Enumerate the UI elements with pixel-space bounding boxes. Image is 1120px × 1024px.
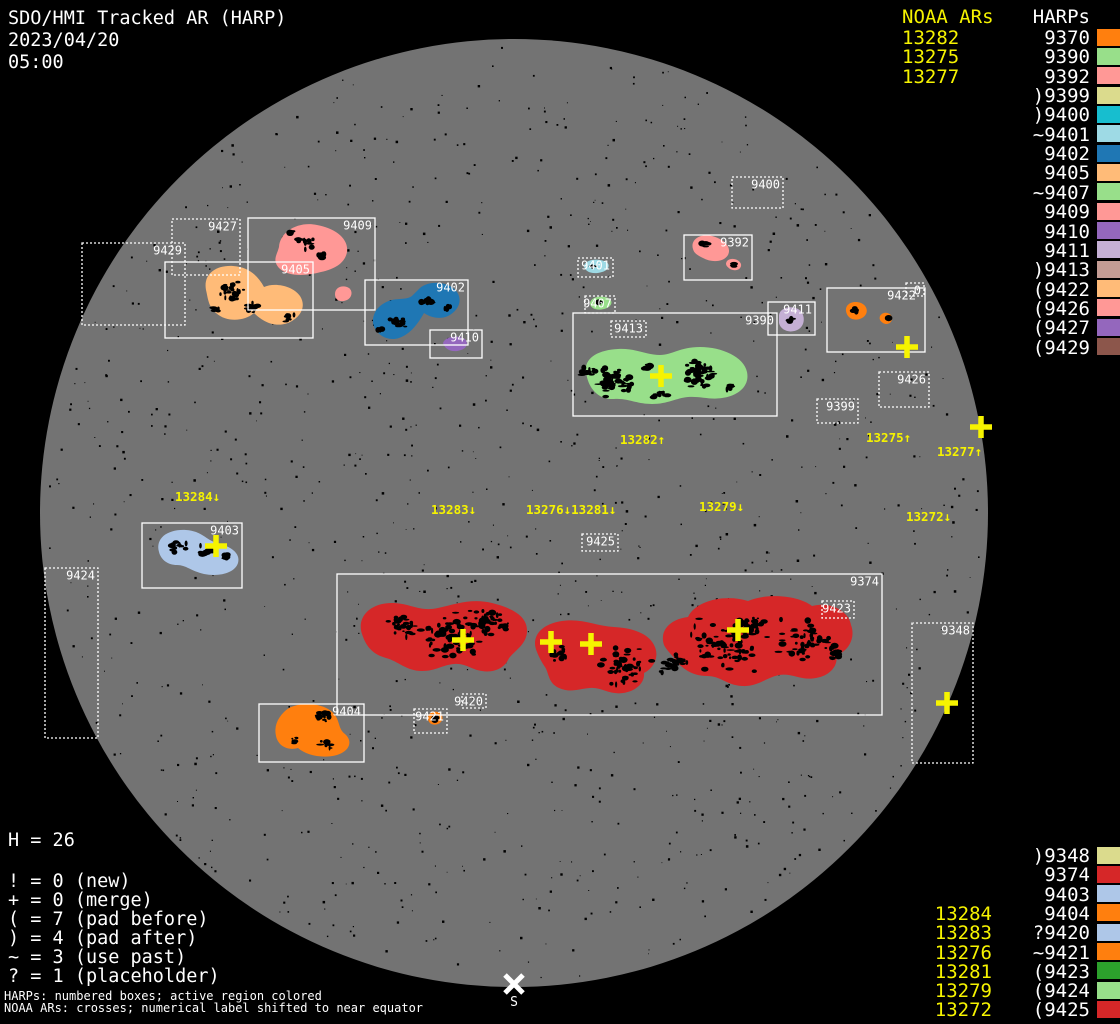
- harp-color-swatch: [1097, 125, 1120, 142]
- harp-box-label-9401: 9401: [581, 259, 610, 273]
- harp-box-label-9413: 9413: [614, 322, 643, 336]
- harp-color-swatch: [1097, 203, 1120, 220]
- harp-color-swatch: [1097, 67, 1120, 84]
- harp-box-label-9405: 9405: [281, 263, 310, 277]
- legend-line-padafter: ) = 4 (pad after): [8, 929, 197, 948]
- harp-color-swatch: [1097, 106, 1120, 123]
- harp-box-label-9400: 9400: [751, 178, 780, 192]
- harp-box-label-9423: 9423: [822, 602, 851, 616]
- noaa-disk-label: 13279↓: [699, 499, 744, 514]
- harp-color-swatch: [1097, 299, 1120, 316]
- harp-box-label-9392: 9392: [720, 236, 749, 250]
- harp-color-swatch: [1097, 280, 1120, 297]
- harp-color-swatch: [1097, 904, 1120, 921]
- harp-color-swatch: [1097, 261, 1120, 278]
- noaa-disk-label: 13282↑: [620, 432, 665, 447]
- noaa-disk-label: 13272↓: [906, 509, 951, 524]
- harp-color-swatch: [1097, 87, 1120, 104]
- harp-color-swatch: [1097, 319, 1120, 336]
- harp-box-label-9425: 9425: [586, 535, 615, 549]
- harp-color-swatch: [1097, 183, 1120, 200]
- harp-list-item: (9425: [998, 999, 1090, 1021]
- noaa-disk-label: 13276↓13281↓: [526, 502, 616, 517]
- harps-header: HARPs: [998, 8, 1090, 28]
- harp-box-label-9421: 9421: [415, 710, 444, 724]
- harp-color-swatch: [1097, 943, 1120, 960]
- noaa-ar-item: 13272: [900, 999, 992, 1021]
- legend-line-usepast: ~ = 3 (use past): [8, 948, 186, 967]
- harp-count-line: H = 26: [8, 831, 75, 850]
- legend-line-merge: + = 0 (merge): [8, 891, 153, 910]
- harp-color-swatch: [1097, 982, 1120, 999]
- harp-color-swatch: [1097, 241, 1120, 258]
- harp-box-label-9402: 9402: [436, 281, 465, 295]
- harp-color-swatch: [1097, 29, 1120, 46]
- harp-box-label-9370: 0: [914, 284, 921, 298]
- harp-color-swatch: [1097, 1001, 1120, 1018]
- harp-box-label-9374: 9374: [850, 575, 879, 589]
- harp-box-label-9426: 9426: [897, 373, 926, 387]
- harp-color-swatch: [1097, 48, 1120, 65]
- legend-line-padbefore: ( = 7 (pad before): [8, 910, 208, 929]
- solar-disk-canvas: 9409940594029410939294119390942294039404…: [0, 0, 1120, 1024]
- page-title: SDO/HMI Tracked AR (HARP): [8, 9, 286, 28]
- solar-disk: [40, 39, 988, 987]
- time-label: 05:00: [8, 53, 64, 72]
- noaa-disk-label: 13275↑: [866, 430, 911, 445]
- harp-color-swatch: [1097, 847, 1120, 864]
- harp-box-label-9422: 9422: [887, 289, 916, 303]
- harp-box-label-9348: 9348: [941, 624, 970, 638]
- harp-box-label-9409: 9409: [343, 219, 372, 233]
- harp-color-swatch: [1097, 338, 1120, 355]
- legend-line-placeholder: ? = 1 (placeholder): [8, 967, 220, 986]
- noaa-ar-item: 13277: [902, 66, 959, 88]
- harp-box-label-9411: 9411: [783, 303, 812, 317]
- date-label: 2023/04/20: [8, 31, 119, 50]
- harp-box-label-9429: 9429: [153, 244, 182, 258]
- harp-box-label-9427: 9427: [208, 220, 237, 234]
- noaa-ars-header: NOAA ARs: [902, 8, 994, 28]
- noaa-disk-label: 13277↑: [937, 444, 982, 459]
- harp-box-label-9390: 9390: [745, 314, 774, 328]
- harp-box-label-9399: 9399: [826, 400, 855, 414]
- harp-box-label-9407: 9407: [583, 297, 612, 311]
- harp-box-label-9420: 9420: [454, 695, 483, 709]
- harp-color-swatch: [1097, 885, 1120, 902]
- south-pole-label: S: [510, 995, 518, 1010]
- harp-box-label-9424: 9424: [66, 569, 95, 583]
- noaa-disk-label: 13284↓: [175, 489, 220, 504]
- harp-color-swatch: [1097, 145, 1120, 162]
- harp-color-swatch: [1097, 962, 1120, 979]
- harp-list-item: (9429: [998, 337, 1090, 359]
- legend-line-new: ! = 0 (new): [8, 872, 131, 891]
- harp-map-stage: 9409940594029410939294119390942294039404…: [0, 0, 1120, 1024]
- harp-color-swatch: [1097, 866, 1120, 883]
- noaa-disk-label: 13283↓: [431, 502, 476, 517]
- footnote-noaa: NOAA ARs: crosses; numerical label shift…: [4, 1002, 423, 1015]
- harp-color-swatch: [1097, 924, 1120, 941]
- harp-color-swatch: [1097, 222, 1120, 239]
- harp-color-swatch: [1097, 164, 1120, 181]
- harp-box-label-9410: 9410: [450, 331, 479, 345]
